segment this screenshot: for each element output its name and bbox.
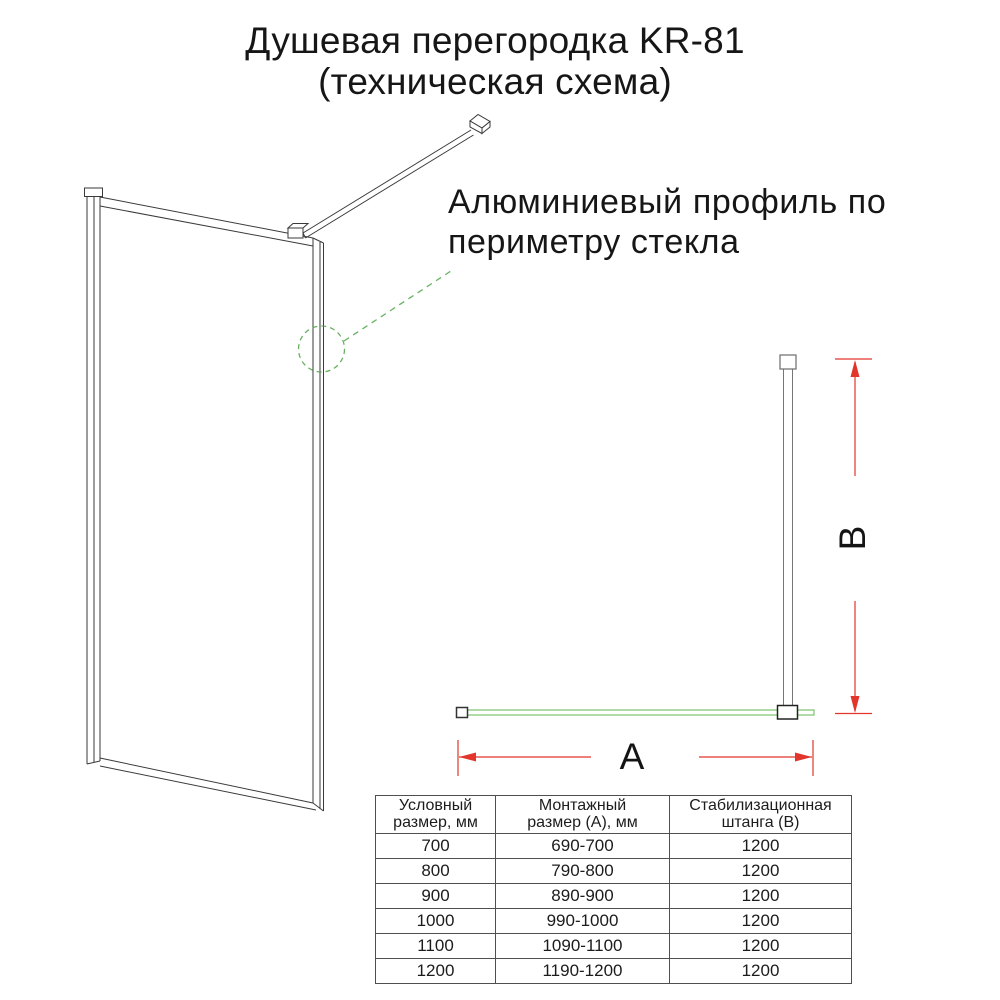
dimension-b-label: B bbox=[833, 515, 873, 561]
dim-a-arrow-left bbox=[459, 753, 476, 762]
cell-nominal: 700 bbox=[376, 834, 496, 859]
table-row: 700 690-700 1200 bbox=[376, 834, 852, 859]
header-line: размер, мм bbox=[376, 815, 495, 832]
cell-bar: 1200 bbox=[670, 934, 852, 959]
cell-nominal: 1100 bbox=[376, 934, 496, 959]
cell-mounting: 1090-1100 bbox=[496, 934, 670, 959]
cell-bar: 1200 bbox=[670, 859, 852, 884]
table-row: 900 890-900 1200 bbox=[376, 884, 852, 909]
bar-clamp-top-face bbox=[288, 224, 308, 229]
cell-bar: 1200 bbox=[670, 959, 852, 984]
stabilizer-bar-3d bbox=[288, 115, 490, 239]
cell-nominal: 1000 bbox=[376, 909, 496, 934]
wall-profile-plan bbox=[457, 708, 468, 718]
dimension-a-label: A bbox=[610, 736, 654, 778]
size-table: Условный размер, мм Монтажный размер (А)… bbox=[375, 795, 852, 984]
header-line: Монтажный bbox=[496, 798, 669, 815]
header-line: размер (А), мм bbox=[496, 815, 669, 832]
dim-a-arrow-right bbox=[795, 753, 812, 762]
col-header-nominal-size: Условный размер, мм bbox=[376, 796, 496, 834]
top-view-schematic bbox=[457, 355, 815, 719]
annotation-circle bbox=[299, 326, 345, 372]
cell-mounting: 690-700 bbox=[496, 834, 670, 859]
profile-annotation-marker bbox=[299, 269, 455, 372]
cell-nominal: 1200 bbox=[376, 959, 496, 984]
table-row: 1100 1090-1100 1200 bbox=[376, 934, 852, 959]
bar-clamp-3d bbox=[288, 228, 303, 238]
cell-bar: 1200 bbox=[670, 909, 852, 934]
table-row: 1200 1190-1200 1200 bbox=[376, 959, 852, 984]
table-row: 1000 990-1000 1200 bbox=[376, 909, 852, 934]
dim-b-arrow-down bbox=[851, 696, 860, 713]
cell-bar: 1200 bbox=[670, 834, 852, 859]
cell-mounting: 890-900 bbox=[496, 884, 670, 909]
cell-nominal: 900 bbox=[376, 884, 496, 909]
panel-3d-view bbox=[85, 188, 324, 811]
cell-nominal: 800 bbox=[376, 859, 496, 884]
cell-mounting: 990-1000 bbox=[496, 909, 670, 934]
header-line: штанга (B) bbox=[670, 815, 851, 832]
bar-clamp-plan bbox=[778, 706, 798, 720]
cell-bar: 1200 bbox=[670, 884, 852, 909]
left-profile-cap bbox=[85, 188, 103, 197]
dim-b-arrow-up bbox=[851, 360, 860, 377]
size-table-header-row: Условный размер, мм Монтажный размер (А)… bbox=[376, 796, 852, 834]
wall-bracket-3d bbox=[470, 115, 490, 134]
header-line: Стабилизационная bbox=[670, 798, 851, 815]
cell-mounting: 790-800 bbox=[496, 859, 670, 884]
header-line: Условный bbox=[376, 798, 495, 815]
glass-panel-plan bbox=[459, 710, 815, 715]
annotation-leader-line bbox=[344, 269, 454, 341]
table-row: 800 790-800 1200 bbox=[376, 859, 852, 884]
bar-wall-cap bbox=[780, 355, 796, 369]
technical-scheme-page: { "title": { "line1": "Душевая перегород… bbox=[0, 0, 1000, 1000]
col-header-stabilizer-bar: Стабилизационная штанга (B) bbox=[670, 796, 852, 834]
col-header-mounting-size: Монтажный размер (А), мм bbox=[496, 796, 670, 834]
cell-mounting: 1190-1200 bbox=[496, 959, 670, 984]
